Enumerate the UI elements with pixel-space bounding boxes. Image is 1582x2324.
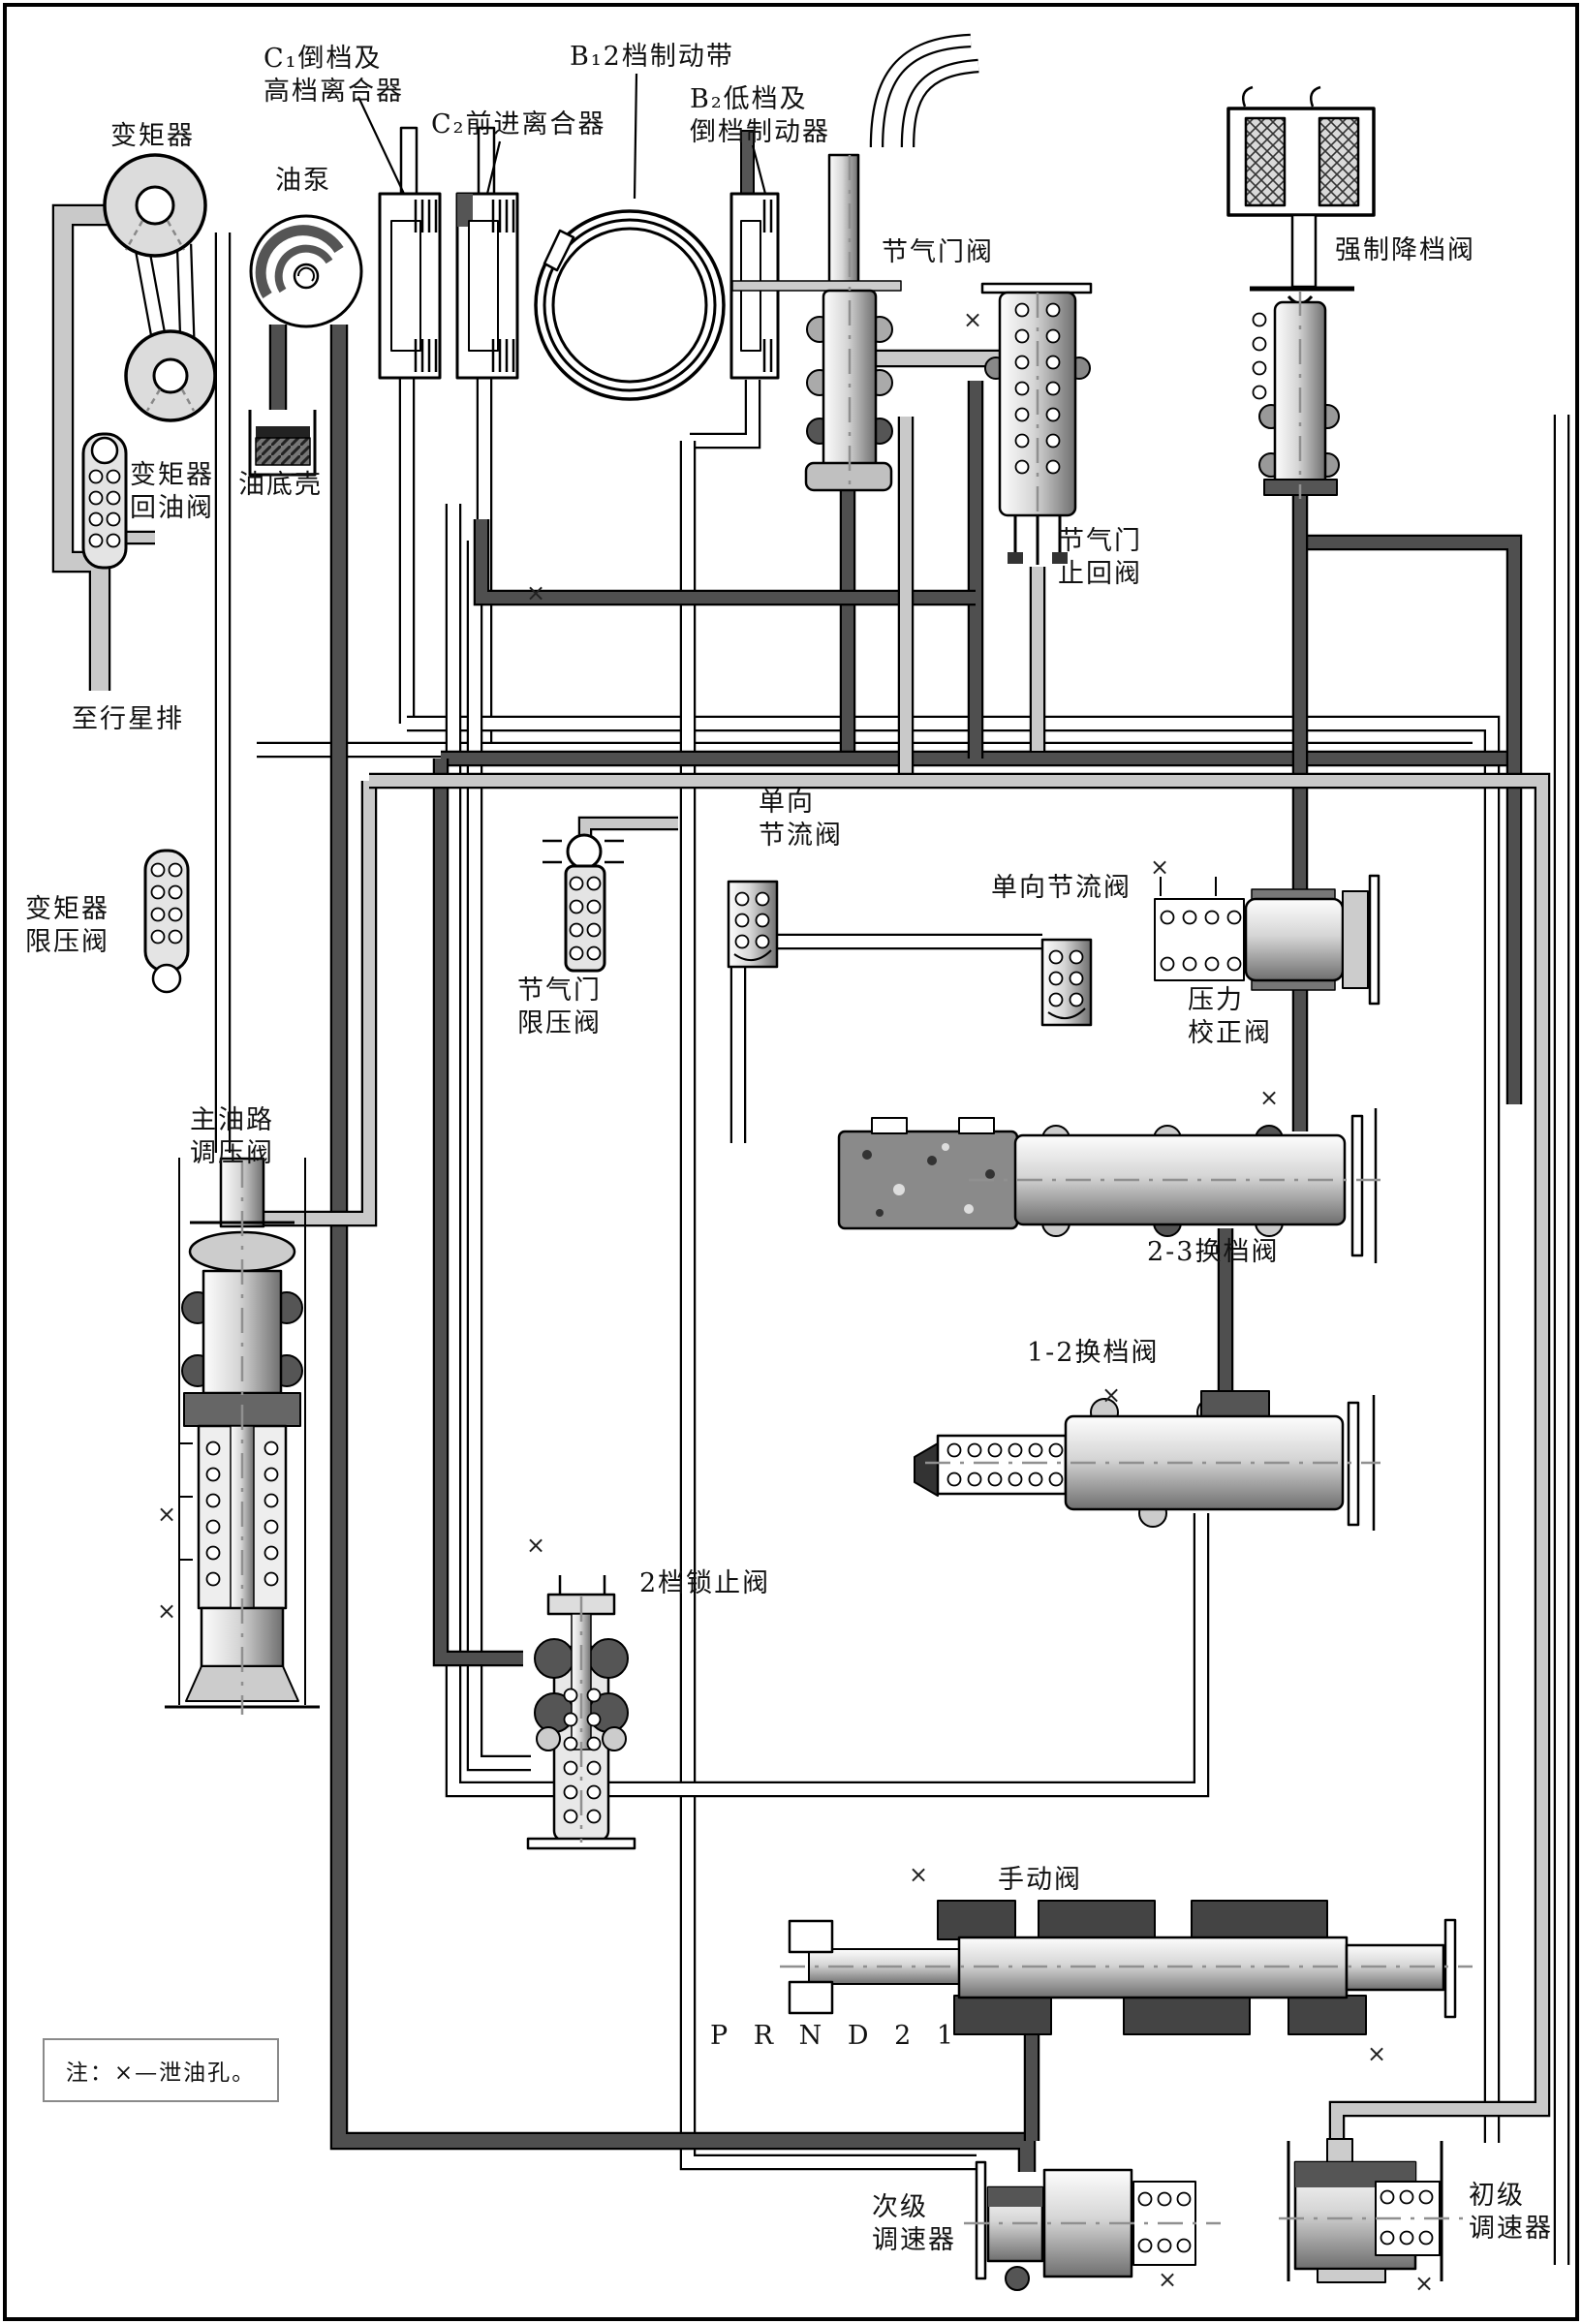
- label-c2-clutch: C₂前进离合器: [431, 108, 605, 141]
- label-shift-valve-23: 2-3换档阀: [1147, 1236, 1279, 1269]
- drain-hole-mark: ×: [526, 1532, 545, 1559]
- label-oneway-throttle-right: 单向节流阀: [991, 872, 1132, 905]
- main-regulator-symbol: [165, 1158, 320, 1707]
- gear-position-letters: P R N D 2 1: [710, 2021, 962, 2051]
- label-oil-pan: 油底壳: [238, 469, 323, 502]
- label-throttle-check-valve: 节气门 止回阀: [1058, 525, 1142, 591]
- oneway-throttle-valve-left-symbol: [729, 882, 777, 967]
- label-b1-band: B₁2档制动带: [570, 41, 734, 74]
- drain-hole-mark: ×: [1158, 2266, 1177, 2293]
- label-second-gear-lock-valve: 2档锁止阀: [639, 1567, 770, 1600]
- label-kickdown-valve: 强制降档阀: [1335, 234, 1475, 267]
- label-to-planetary: 至行星排: [72, 703, 184, 736]
- components-layer: [83, 87, 1455, 2290]
- oil-pan-symbol: [250, 410, 315, 475]
- drain-hole-mark: ×: [1259, 1084, 1279, 1111]
- drain-hole-mark: ×: [1414, 2270, 1434, 2297]
- label-throttle-limit-valve: 节气门 限压阀: [517, 975, 602, 1040]
- label-pressure-correction-valve: 压力 校正阀: [1188, 984, 1272, 1050]
- label-converter-return-valve: 变矩器 回油阀: [130, 459, 214, 525]
- c1-clutch-symbol: [380, 128, 440, 378]
- drain-hole-mark: ×: [157, 1597, 176, 1625]
- label-c1-clutch: C₁倒档及 高档离合器: [264, 43, 404, 108]
- label-oneway-throttle-left: 单向 节流阀: [759, 787, 843, 852]
- drain-hole-mark: ×: [1101, 1381, 1121, 1409]
- label-oil-pump: 油泵: [275, 165, 331, 198]
- oil-pump-symbol: [251, 216, 361, 326]
- oneway-throttle-valve-right-symbol: [1042, 940, 1091, 1025]
- label-torque-converter: 变矩器: [110, 120, 195, 153]
- label-main-regulator: 主油路 调压阀: [190, 1104, 274, 1170]
- note-box: 注：×—泄油孔。: [43, 2038, 279, 2102]
- c2-clutch-symbol: [457, 128, 517, 378]
- label-manual-valve: 手动阀: [998, 1864, 1082, 1897]
- drain-hole-mark: ×: [1367, 2040, 1386, 2067]
- label-secondary-governor: 次级 调速器: [872, 2191, 956, 2257]
- primary-governor-symbol: [1288, 2139, 1442, 2282]
- shift-valve-12-symbol: [915, 1391, 1374, 1531]
- label-converter-limit-valve: 变矩器 限压阀: [25, 893, 109, 959]
- note-text: 注：×—泄油孔。: [66, 2054, 256, 2087]
- drain-hole-mark: ×: [963, 306, 982, 333]
- drain-hole-mark: ×: [1150, 853, 1169, 881]
- label-shift-valve-12: 1-2换档阀: [1027, 1337, 1159, 1370]
- converter-limit-valve-symbol: [145, 851, 188, 992]
- drain-hole-mark: ×: [157, 1501, 176, 1528]
- label-b2-brake: B₂低档及 倒档制动器: [690, 83, 830, 149]
- label-throttle-valve: 节气门阀: [882, 236, 994, 269]
- pipe-network-dark: [278, 325, 1514, 2172]
- hydraulic-circuit-diagram: 变矩器 油泵 C₁倒档及 高档离合器 C₂前进离合器 B₁2档制动带 B₂低档及…: [0, 0, 1582, 2324]
- label-primary-governor: 初级 调速器: [1469, 2180, 1553, 2246]
- b2-brake-symbol: [731, 131, 778, 378]
- throttle-limit-valve-symbol: [543, 835, 624, 971]
- b1-band-symbol: [536, 211, 724, 399]
- converter-return-valve-symbol: [83, 434, 126, 568]
- torque-converter-symbol: [105, 155, 215, 420]
- drain-hole-mark: ×: [526, 579, 545, 606]
- drain-hole-mark: ×: [909, 1861, 928, 1888]
